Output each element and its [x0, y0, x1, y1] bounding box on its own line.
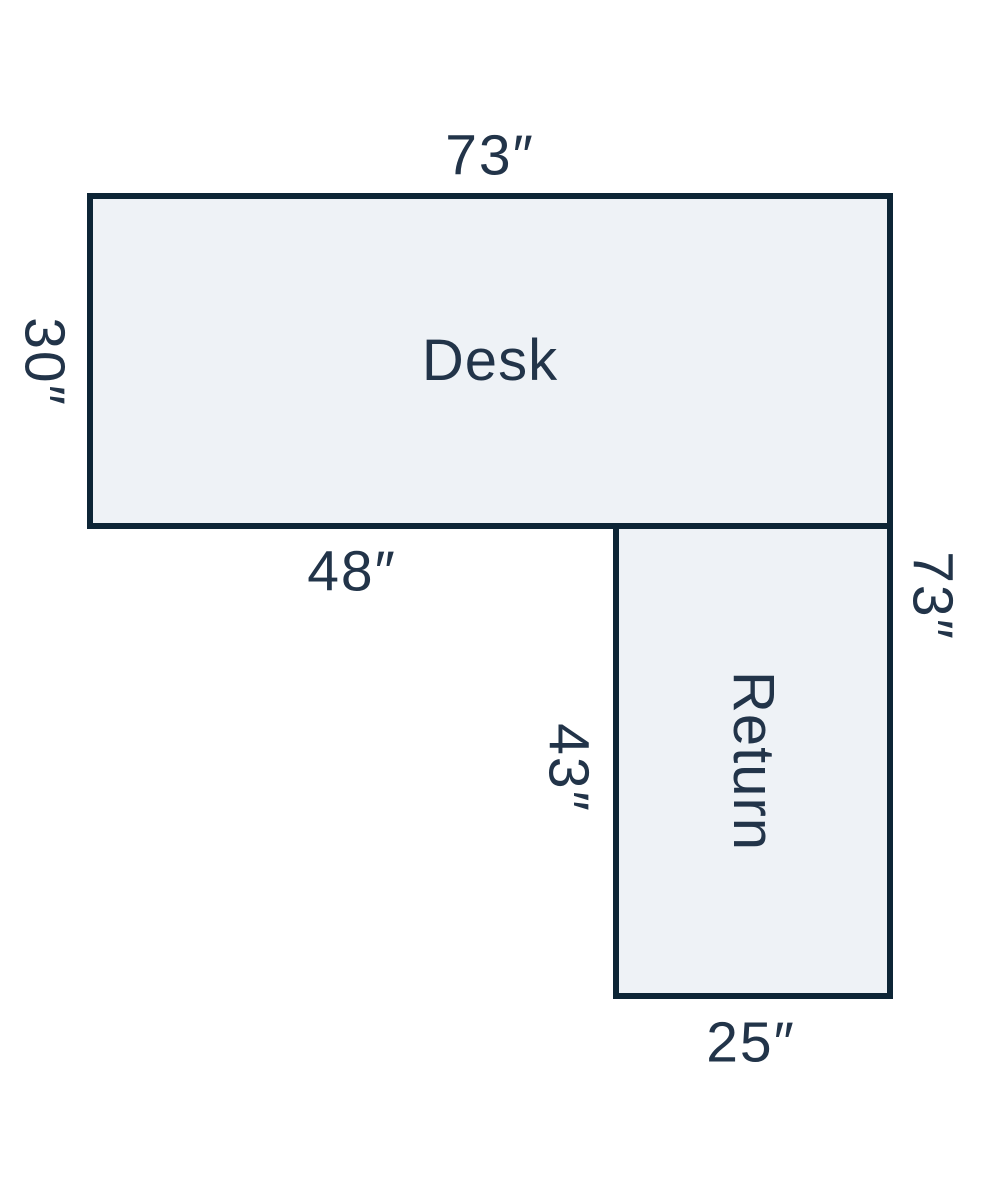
return-label: Return [724, 671, 782, 851]
desk-top-width-dimension: 73″ [445, 128, 535, 185]
return-left-length-dimension: 43″ [540, 723, 597, 813]
right-edge-total-length-dimension: 73″ [904, 551, 961, 641]
desk-label: Desk [422, 332, 558, 390]
return-shape: Return [613, 529, 893, 999]
desk-left-depth-dimension: 30″ [16, 317, 73, 407]
desk-shape: Desk [87, 193, 893, 529]
desk-bottom-width-dimension: 48″ [307, 544, 397, 601]
return-bottom-width-dimension: 25″ [706, 1015, 796, 1072]
diagram-canvas: Desk Return 73″ 30″ 48″ 43″ 73″ 25″ [0, 0, 1000, 1200]
